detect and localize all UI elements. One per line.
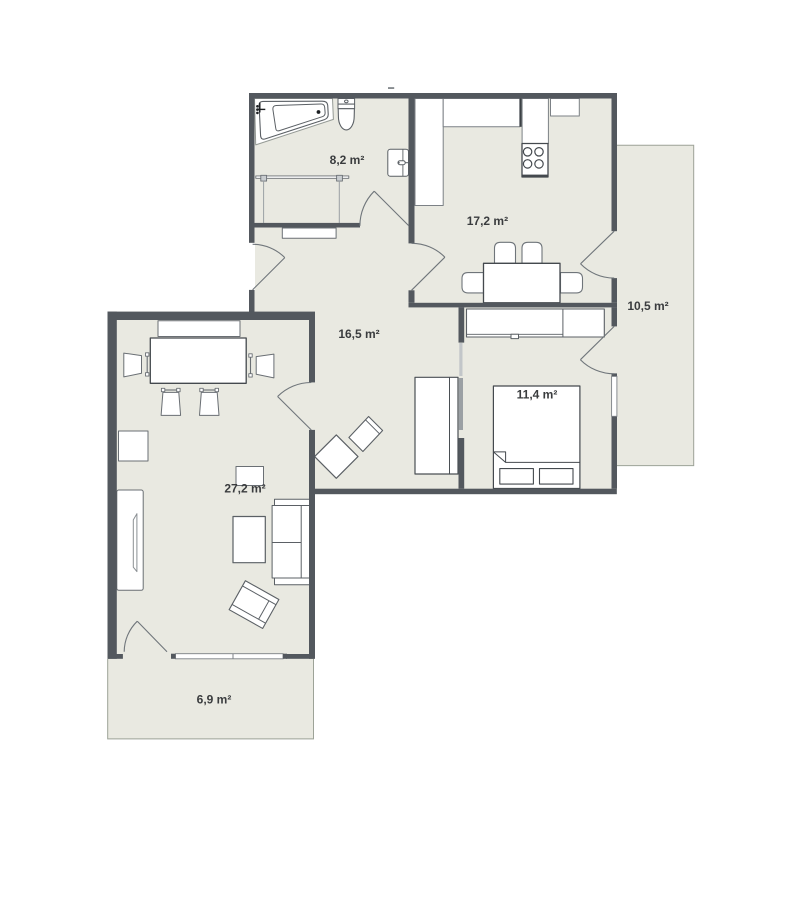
- svg-text:10,5 m²: 10,5 m²: [627, 299, 668, 313]
- svg-text:6,9 m²: 6,9 m²: [197, 693, 232, 707]
- svg-text:11,4 m²: 11,4 m²: [517, 388, 558, 402]
- svg-text:17,2 m²: 17,2 m²: [467, 214, 508, 228]
- svg-text:27,2 m²: 27,2 m²: [224, 482, 265, 496]
- svg-text:16,5 m²: 16,5 m²: [338, 327, 379, 341]
- svg-text:8,2 m²: 8,2 m²: [330, 153, 365, 167]
